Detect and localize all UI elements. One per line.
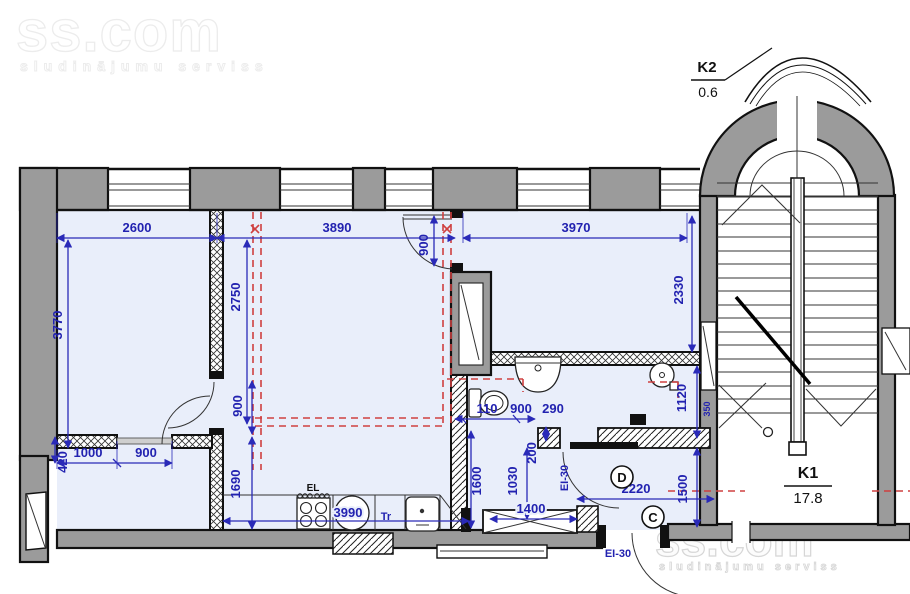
stair-stringer xyxy=(791,178,804,442)
dim-living-width: 3890 xyxy=(323,220,352,235)
dim-partition-depth: 2750 xyxy=(228,283,243,312)
landing-door-opening xyxy=(732,521,750,543)
door-lintel xyxy=(570,442,638,449)
room-label-k1: K1 17.8 xyxy=(784,465,832,507)
new-wall-section xyxy=(333,533,393,554)
dim-window-width: 1400 xyxy=(517,501,546,516)
dim-kitchen-width: 3990 xyxy=(334,505,363,520)
stair-window-right xyxy=(882,328,910,374)
window xyxy=(660,184,700,206)
west-window xyxy=(26,492,46,550)
dim-stair-window: 350 xyxy=(702,401,712,416)
north-wall xyxy=(20,168,700,210)
dim-kitchen-depth: 1600 xyxy=(469,467,484,496)
dim-room2-depth: 2330 xyxy=(671,276,686,305)
bathroom-west-wall xyxy=(451,375,467,530)
window xyxy=(108,184,190,206)
west-wall xyxy=(20,168,57,562)
k2-label: K2 xyxy=(697,59,716,76)
k1-label: K1 xyxy=(798,465,819,482)
floorplan-drawing: K1 17.8 K2 0.6 xyxy=(0,0,910,594)
dim-door-left: 900 xyxy=(230,395,245,417)
apartment-floor-area xyxy=(57,210,700,530)
k1-area: 17.8 xyxy=(793,490,822,507)
dim-closet-w2: 900 xyxy=(135,445,157,460)
stairwell: K1 17.8 K2 0.6 xyxy=(691,48,910,525)
window xyxy=(517,184,590,206)
south-window xyxy=(437,545,547,558)
ventilation-duct xyxy=(451,272,491,375)
door-tag-d: D xyxy=(617,470,626,485)
fire-rating-exit-door: EI-30 xyxy=(605,548,631,560)
dim-gap: 200 xyxy=(524,442,539,464)
floorplan-page: ss.com sludinājumu serviss ss.com sludin… xyxy=(0,0,910,594)
k2-area: 0.6 xyxy=(698,84,718,100)
dim-door-top: 900 xyxy=(416,234,431,256)
dim-room1-width: 2600 xyxy=(123,220,152,235)
window xyxy=(280,184,353,206)
door-tag-c: C xyxy=(648,510,658,525)
stair-window-left xyxy=(701,322,716,390)
dim-room1-depth: 3770 xyxy=(50,311,65,340)
kitchen-sink xyxy=(406,497,439,531)
door-leaf xyxy=(117,438,172,444)
partition-wall xyxy=(172,435,212,448)
staircase xyxy=(717,178,878,455)
dim-wc-right-depth: 1120 xyxy=(674,384,689,412)
dim-wc-seg1: 110 xyxy=(477,401,498,416)
dim-duct-depth: 1030 xyxy=(505,467,520,496)
stove-label: EL xyxy=(307,483,320,494)
dim-hall-depth: 1500 xyxy=(675,475,690,504)
stove xyxy=(297,494,330,529)
window xyxy=(385,184,433,206)
dim-closet-w1: 1000 xyxy=(74,445,103,460)
dim-hall-left-depth: 1690 xyxy=(228,470,243,499)
dim-room2-width: 3970 xyxy=(562,220,591,235)
fire-rating-hall-door: EI-30 xyxy=(559,465,571,491)
dim-wall-step: 420 xyxy=(55,451,70,473)
bathroom-south-wall xyxy=(538,428,560,448)
partition-wall xyxy=(210,210,223,378)
room-label-k2: K2 0.6 xyxy=(691,48,772,100)
dim-wc-seg2: 900 xyxy=(510,401,532,416)
electric-panel xyxy=(630,414,646,425)
dim-wc-seg3: 290 xyxy=(542,401,564,416)
